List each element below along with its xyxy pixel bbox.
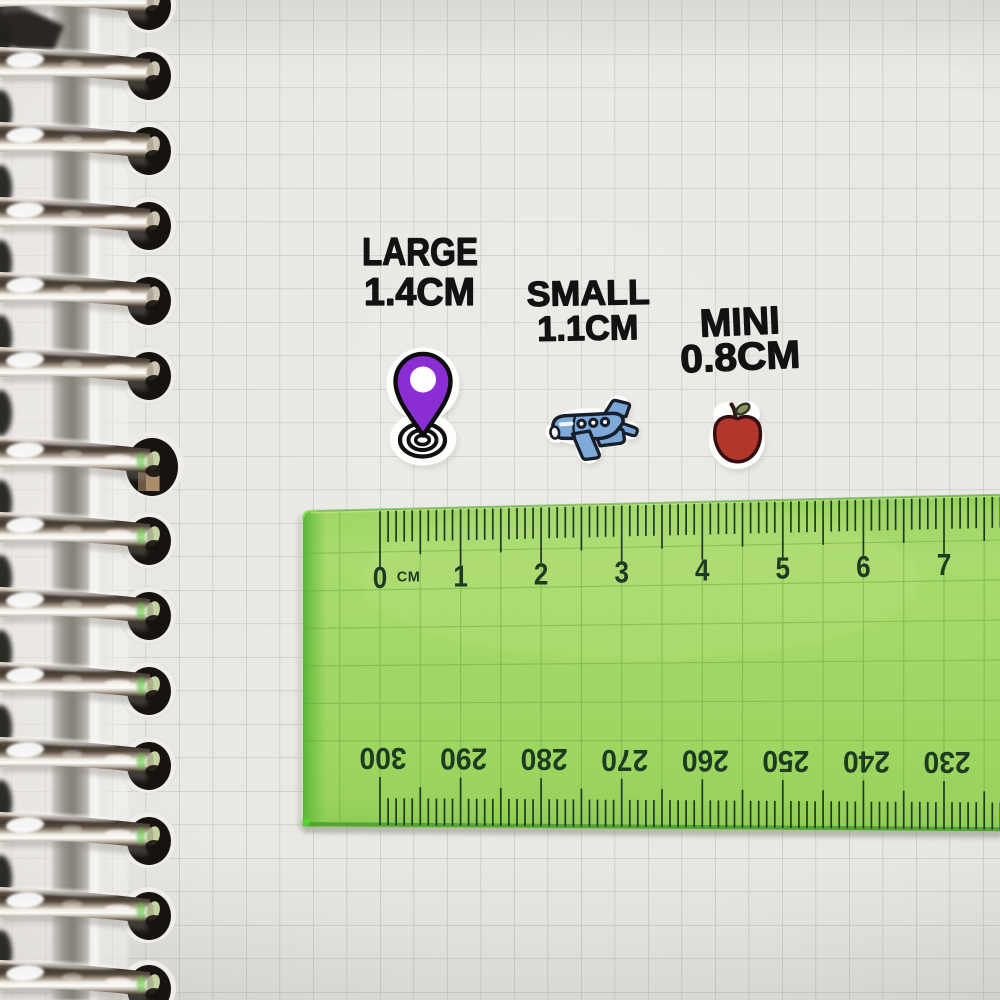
svg-text:3: 3 [614,556,629,590]
svg-text:300: 300 [360,741,407,776]
svg-text:230: 230 [924,745,971,780]
svg-text:2: 2 [534,557,549,591]
svg-text:290: 290 [440,742,487,777]
svg-text:0: 0 [373,561,388,595]
svg-text:1: 1 [453,559,468,593]
svg-text:6: 6 [856,550,871,584]
svg-text:LARGE: LARGE [362,231,478,274]
svg-text:CM: CM [397,570,421,586]
svg-text:4: 4 [695,554,710,588]
svg-text:260: 260 [682,743,729,778]
svg-text:0.8CM: 0.8CM [679,333,801,381]
svg-text:7: 7 [937,548,952,582]
svg-text:1.4CM: 1.4CM [364,271,475,314]
svg-text:250: 250 [762,744,809,779]
svg-text:240: 240 [843,745,890,780]
svg-text:1.1CM: 1.1CM [537,308,639,349]
svg-text:5: 5 [776,552,791,586]
svg-text:270: 270 [601,743,648,778]
svg-text:280: 280 [521,742,568,777]
